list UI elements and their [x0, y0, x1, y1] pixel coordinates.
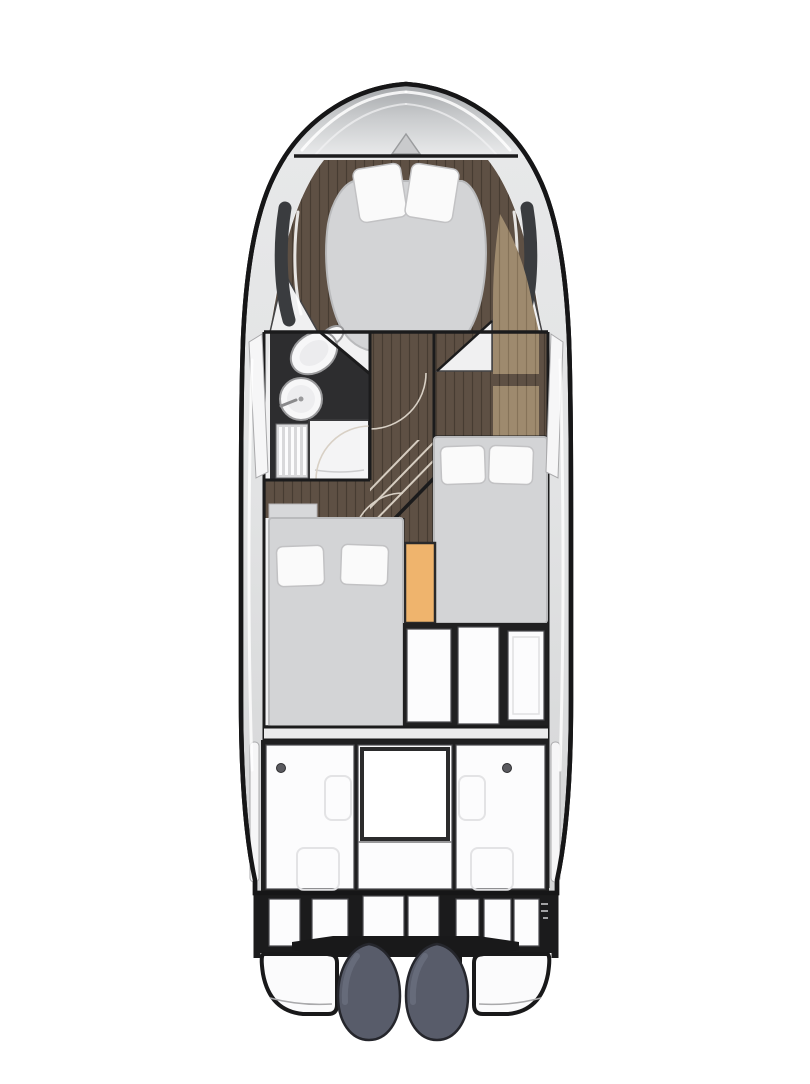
mid-cabin-bed — [269, 504, 403, 727]
cockpit-table — [362, 749, 448, 839]
v-berth-pillow-left — [352, 163, 408, 224]
mid-bed-pillow-right — [340, 544, 388, 586]
cabinet-block-lower-grain — [493, 386, 539, 437]
mid-bed-pillow-left — [276, 545, 324, 587]
engine-bracket — [292, 936, 519, 957]
yacht-floor-plan — [0, 0, 810, 1080]
walkway-strip — [264, 727, 548, 740]
deck-fitting-left — [277, 764, 286, 773]
transom-panel-1 — [269, 899, 300, 946]
v-berth-pillow-right — [404, 163, 460, 224]
guest-bed-right — [434, 437, 547, 623]
boat-plan-canvas — [0, 0, 810, 1080]
bed-head-shelf — [269, 504, 317, 518]
cockpit — [261, 740, 549, 893]
galley-panel-1 — [407, 629, 451, 722]
deck-fitting-right — [503, 764, 512, 773]
galley-panel-2 — [458, 627, 499, 724]
wardrobe-unit — [405, 543, 435, 623]
guest-bed-pillow-right — [488, 445, 533, 485]
cockpit-bench-right — [456, 745, 545, 889]
washbasin-drain — [299, 397, 304, 402]
transom-panel-7 — [514, 899, 539, 946]
guest-bed-pillow-left — [440, 445, 485, 485]
galley-units — [403, 623, 548, 727]
